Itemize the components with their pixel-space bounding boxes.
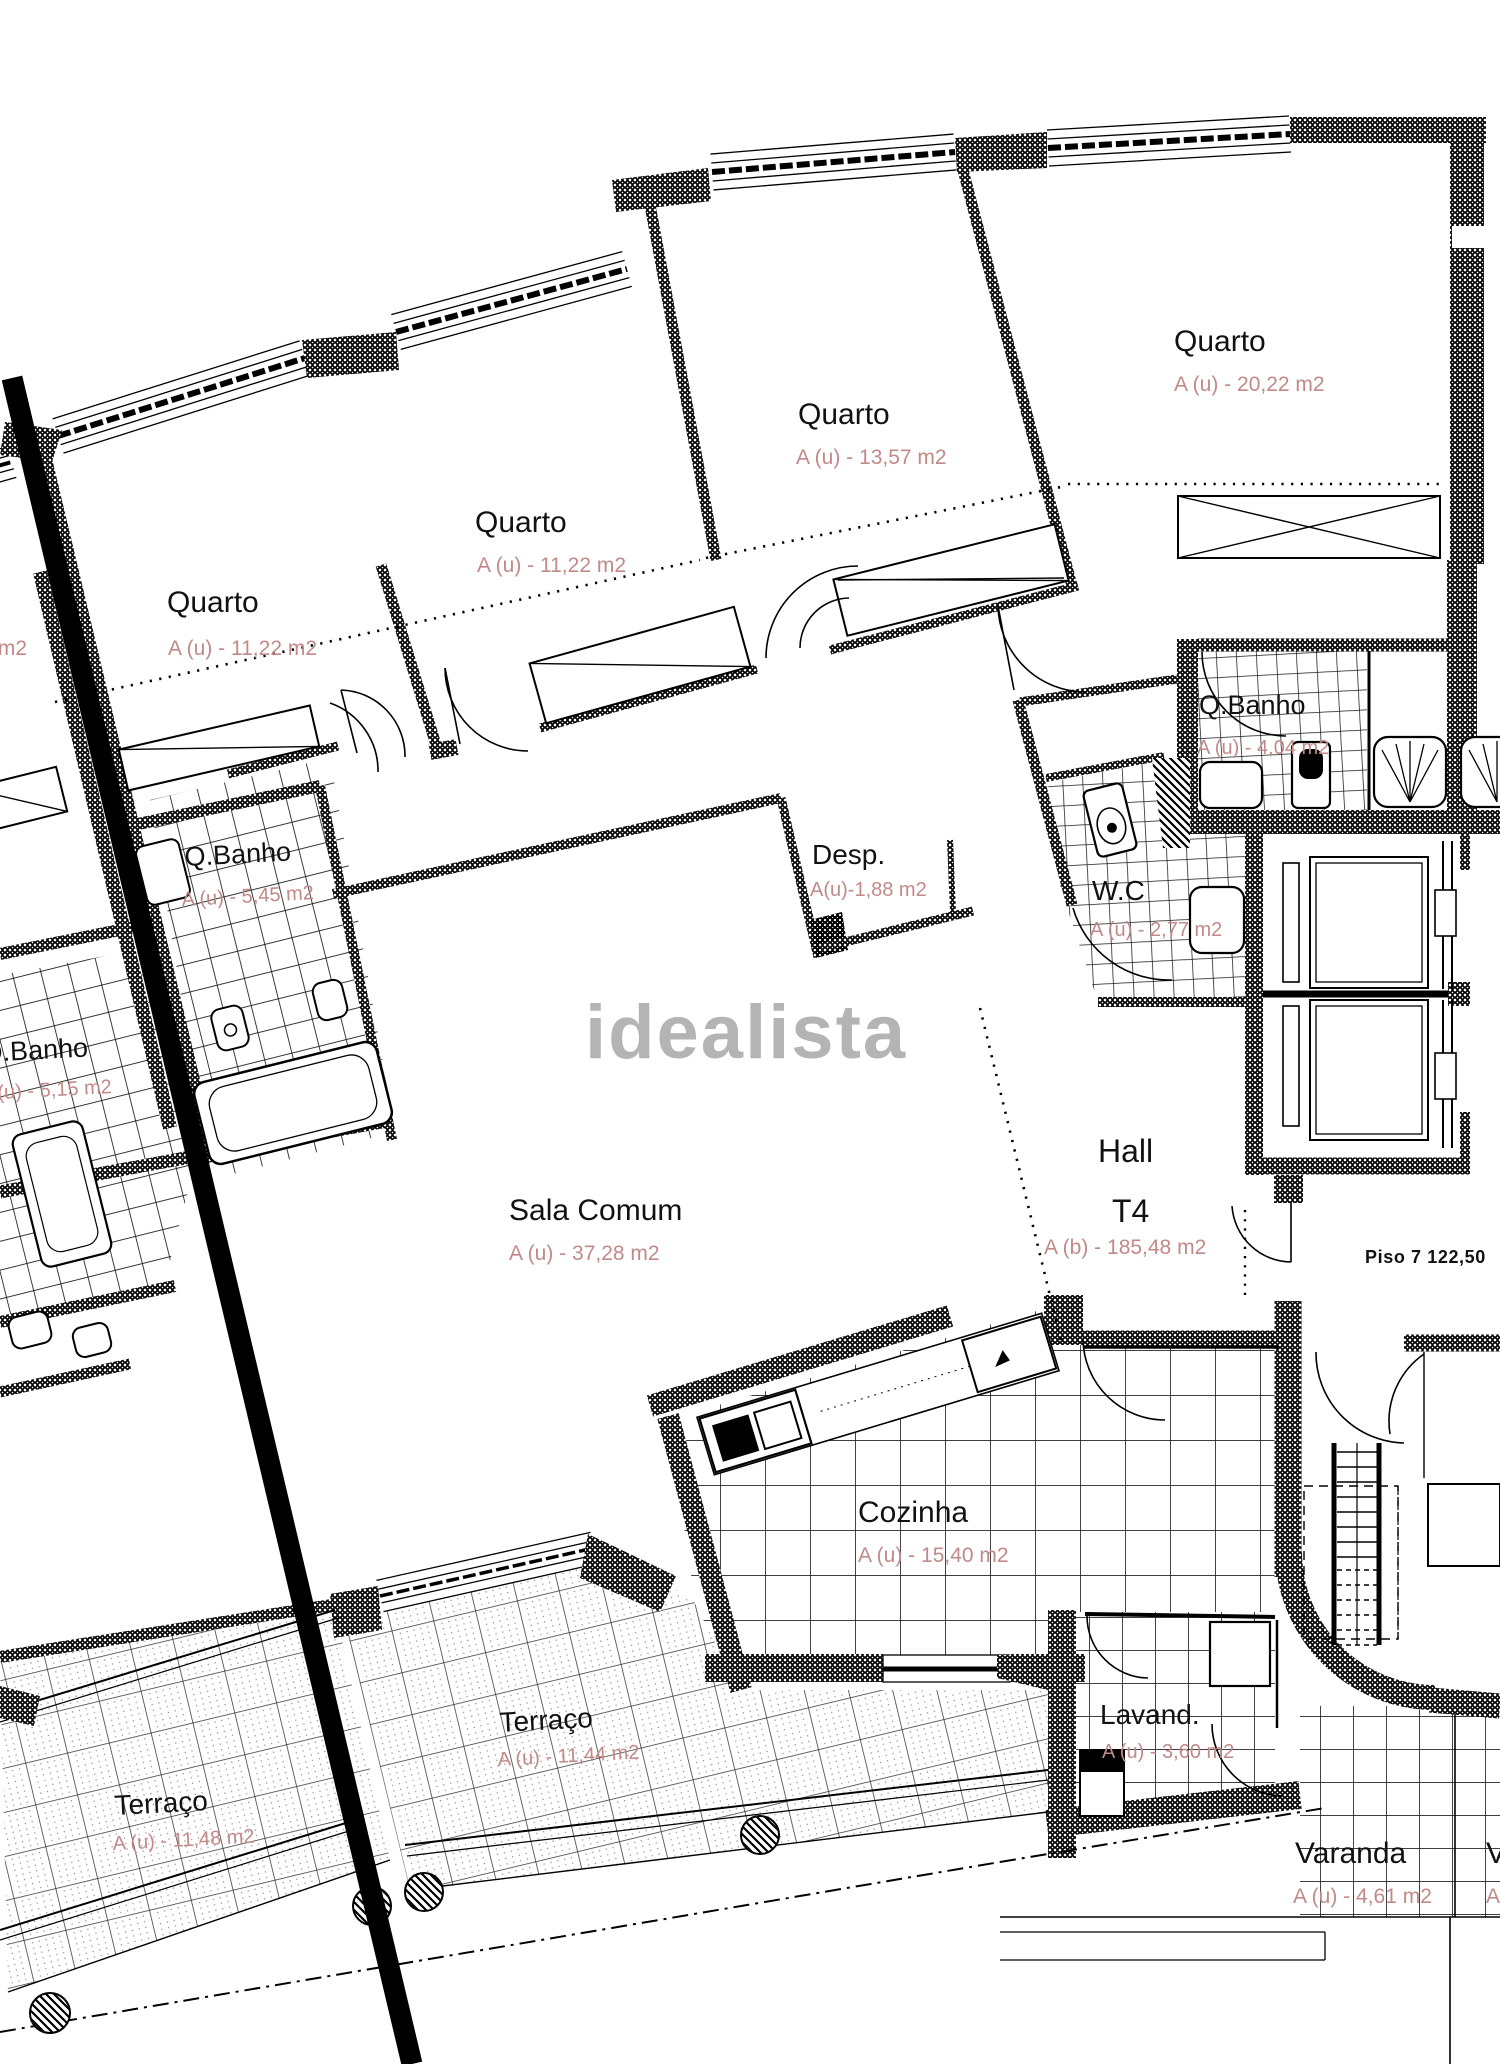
- svg-text:A (u) - 11,22 m2: A (u) - 11,22 m2: [0, 637, 27, 660]
- svg-text:Varanda: Varanda: [1295, 1837, 1407, 1870]
- svg-text:A (u) - 4,61 m2: A (u) - 4,61 m2: [1293, 1885, 1432, 1908]
- svg-text:A (b) - 185,48 m2: A (b) - 185,48 m2: [1044, 1236, 1206, 1259]
- svg-text:A (u) - 4,04 m2: A (u) - 4,04 m2: [1197, 737, 1329, 759]
- svg-text:W.C: W.C: [1092, 875, 1145, 906]
- svg-text:Va: Va: [1486, 1837, 1500, 1870]
- svg-text:T4: T4: [1112, 1193, 1149, 1229]
- svg-text:Quarto: Quarto: [167, 586, 259, 619]
- svg-text:Quarto: Quarto: [798, 398, 890, 431]
- svg-text:A (u) - 3,60 m2: A (u) - 3,60 m2: [1102, 1741, 1234, 1763]
- svg-text:Quarto: Quarto: [1174, 325, 1266, 358]
- svg-text:A (: A (: [1486, 1885, 1500, 1908]
- svg-text:Q.Banho: Q.Banho: [184, 836, 292, 872]
- svg-text:A (u) - 37,28 m2: A (u) - 37,28 m2: [509, 1242, 660, 1265]
- svg-text:Desp.: Desp.: [812, 839, 885, 870]
- svg-text:A (u) - 20,22 m2: A (u) - 20,22 m2: [1174, 373, 1325, 396]
- svg-text:A (u) - 15,40 m2: A (u) - 15,40 m2: [858, 1544, 1009, 1567]
- svg-text:A (u) - 11,22 m2: A (u) - 11,22 m2: [168, 637, 317, 660]
- svg-text:Terraço: Terraço: [114, 1785, 209, 1821]
- svg-text:Quarto: Quarto: [475, 506, 567, 539]
- svg-text:Q.Banho: Q.Banho: [0, 1032, 89, 1068]
- svg-text:Piso 7 122,50: Piso 7 122,50: [1365, 1247, 1486, 1267]
- svg-text:Lavand.: Lavand.: [1100, 1699, 1200, 1730]
- svg-text:A(u)-1,88 m2: A(u)-1,88 m2: [810, 879, 927, 901]
- svg-text:A (u) - 11,22 m2: A (u) - 11,22 m2: [477, 554, 626, 577]
- svg-text:Q.Banho: Q.Banho: [1199, 690, 1306, 720]
- svg-text:Sala Comum: Sala Comum: [509, 1194, 682, 1227]
- svg-text:idealista: idealista: [585, 990, 907, 1075]
- svg-text:A (u) - 2,77 m2: A (u) - 2,77 m2: [1090, 919, 1222, 941]
- svg-text:Cozinha: Cozinha: [858, 1496, 968, 1529]
- svg-text:Terraço: Terraço: [499, 1702, 594, 1738]
- svg-text:A (u) - 13,57 m2: A (u) - 13,57 m2: [796, 446, 947, 469]
- svg-text:Hall: Hall: [1098, 1133, 1153, 1169]
